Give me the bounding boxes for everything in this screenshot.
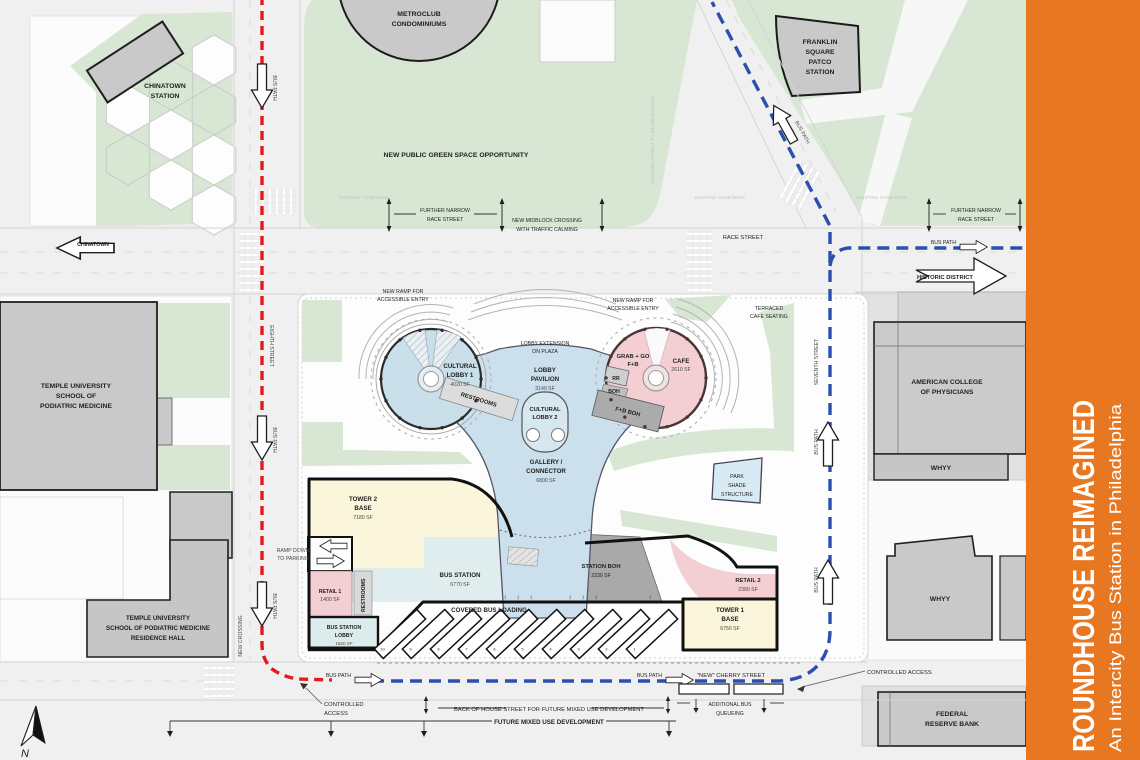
new-crossing-label: NEW CROSSING: [238, 615, 244, 656]
station-lobby-label: BUS STATION: [327, 625, 362, 631]
project-title: ROUNDHOUSE REIMAGINED: [1067, 400, 1101, 752]
column-dot: [604, 376, 607, 379]
column-dot: [643, 328, 646, 331]
cultural-lobby1-label: CULTURAL: [443, 363, 476, 370]
further-narrow-label: FURTHER NARROW: [420, 208, 470, 214]
seventh-street-label: SEVENTH STREET: [814, 338, 820, 385]
park-shade-label: PARK: [730, 474, 744, 480]
bus-queue-slot: [679, 684, 729, 694]
bus-path-label: BUS PATH: [271, 427, 277, 452]
column-dot: [704, 376, 707, 379]
site-plan-sheet: CHINATOWN STATION METROCLUB CONDOMINIUMS…: [0, 0, 1140, 760]
additional-queue-label: ADDITIONAL BUS: [708, 702, 752, 708]
station-lobby-label: LOBBY: [335, 633, 354, 639]
tick-arrow: ↕: [649, 595, 652, 601]
further-narrow-label: RACE STREET: [427, 217, 464, 223]
lobby-pavilion-label: PAVILION: [531, 376, 560, 383]
existing-curb-note: EXISTING CURB EDGE: [339, 195, 389, 200]
column-dot: [623, 415, 626, 418]
column-dot: [609, 398, 612, 401]
bus-path-label: BUS PATH: [326, 673, 351, 679]
green-area: [157, 303, 230, 398]
existing-curb-note: EXISTING CURB EDGE: [857, 195, 907, 200]
station-site: F+B BOH RESTROOMS RESTROOMS 10987654321 …: [277, 289, 868, 663]
cultural-lobby2-label: CULTURAL: [529, 407, 561, 413]
acp-label: OF PHYSICIANS: [921, 389, 974, 396]
patco-label: SQUARE: [805, 49, 835, 56]
terraced-seating-label: CAFE SEATING: [750, 314, 788, 320]
cultural-lobby2-label: LOBBY 2: [532, 415, 557, 421]
temple-residence-label: SCHOOL OF PODIATRIC MEDICINE: [106, 625, 210, 632]
historic-district-label: HISTORIC DISTRICT: [917, 275, 973, 281]
site-plan-map: CHINATOWN STATION METROCLUB CONDOMINIUMS…: [0, 0, 1140, 760]
column-dot: [474, 356, 477, 359]
temple-residence-label: RESIDENCE HALL: [131, 635, 186, 642]
tower2-label: 7180 SF: [353, 515, 373, 521]
metroclub-label: METROCLUB: [397, 11, 441, 18]
column-dot: [461, 338, 464, 341]
column-dot: [479, 377, 482, 380]
temple-residence-label: TEMPLE UNIVERSITY: [126, 615, 191, 622]
column-dot: [398, 338, 401, 341]
column-dot: [686, 415, 689, 418]
retail2-label: 2380 SF: [738, 587, 758, 593]
cherry-street-label: "NEW" CHERRY STREET: [697, 673, 765, 679]
lobby1-core: [424, 372, 439, 387]
bus-station-label: BUS STATION: [439, 572, 481, 579]
bus-station-label: 6770 SF: [450, 582, 470, 588]
tower2-label: BASE: [354, 505, 371, 512]
further-narrow-label-right: FURTHER NARROW: [951, 208, 1001, 214]
stair-hatch: [507, 547, 538, 567]
midblock-label: NEW MIDBLOCK CROSSING: [512, 218, 582, 224]
existing-curb-note: EXISTING CURB EDGE: [695, 195, 745, 200]
column-dot: [418, 329, 421, 332]
boh-label: BOH: [608, 389, 620, 395]
existing-street-note: EXISTING STREET TO BE ABANDONED: [650, 96, 655, 182]
lobby-pavilion-label: LOBBY: [534, 367, 557, 374]
restrooms2-label: RESTROOMS: [361, 578, 367, 612]
column-dot: [461, 416, 464, 419]
acp-building: [874, 322, 1026, 454]
chinatown-direction-label: CHINATOWN: [77, 242, 109, 248]
controlled-access-label-left: CONTROLLED: [324, 702, 364, 708]
bus-path-label: BUS PATH: [814, 567, 820, 592]
race-street-label: RACE STREET: [723, 235, 764, 241]
column-dot: [665, 328, 668, 331]
green-area: [302, 300, 342, 362]
column-dot: [623, 337, 626, 340]
station-boh-label: 2330 SF: [591, 573, 611, 579]
green-space-block: METROCLUB CONDOMINIUMS NEW PUBLIC GREEN …: [304, 0, 697, 228]
retail2-label: RETAIL 2: [735, 578, 760, 584]
federal-reserve-label: RESERVE BANK: [925, 721, 979, 728]
column-dot: [474, 399, 477, 402]
chinatown-block: CHINATOWN STATION: [30, 12, 236, 235]
lobby2-fixture: [552, 429, 565, 442]
new-ramp-label-left: NEW RAMP FOR: [383, 289, 424, 295]
column-dot: [379, 377, 382, 380]
column-dot: [384, 399, 387, 402]
retail1-label: 1400 SF: [320, 597, 340, 603]
column-dot: [384, 356, 387, 359]
crosswalk: [686, 230, 712, 292]
building-footprint: [898, 292, 1026, 322]
crosswalk: [250, 188, 296, 214]
column-dot: [699, 398, 702, 401]
building-footprint: [0, 497, 123, 599]
additional-queue-label: QUEUEING: [716, 711, 744, 717]
patco-station-building: [776, 16, 860, 96]
tower1-label: TOWER 1: [716, 607, 745, 614]
temple-blocks: TEMPLE UNIVERSITY SCHOOL OF PODIATRIC ME…: [0, 296, 232, 662]
new-ramp-label-left: ACCESSIBLE ENTRY: [377, 297, 429, 303]
bus-bay-number: 10: [380, 646, 385, 651]
column-dot: [643, 425, 646, 428]
temple-sopm-label: SCHOOL OF: [56, 393, 96, 400]
building-footprint: [1000, 556, 1026, 640]
tick-arrow: ↕: [517, 595, 520, 601]
temple-sopm-label: TEMPLE UNIVERSITY: [41, 383, 112, 390]
cultural-lobby1-label: LOBBY 1: [447, 372, 474, 379]
gallery-label: 6800 SF: [536, 478, 556, 484]
bus-path-label: BUS PATH: [931, 240, 956, 246]
boh-street-label: BACK OF HOUSE STREET FOR FUTURE MIXED US…: [454, 707, 644, 713]
tick-arrow: ↕: [569, 595, 572, 601]
covered-loading-label: COVERED BUS LOADING: [451, 607, 527, 614]
patco-label: PATCO: [809, 59, 832, 66]
green-area: [157, 445, 230, 490]
ramp-down-label: TO PARKING: [277, 556, 309, 562]
whyy-lower-label: WHYY: [930, 596, 951, 603]
bus-path-label: BUS PATH: [814, 429, 820, 454]
tower1-label: 6750 SF: [720, 626, 740, 632]
bus-queue-slot: [734, 684, 783, 694]
column-dot: [398, 416, 401, 419]
tick-arrow: ↕: [582, 595, 585, 601]
cultural-lobby1-label: 4020 SF: [450, 382, 470, 388]
green-space-label: NEW PUBLIC GREEN SPACE OPPORTUNITY: [384, 152, 529, 159]
patco-label: STATION: [806, 69, 835, 76]
grab-go-label: F+B: [627, 362, 638, 368]
column-dot: [699, 355, 702, 358]
title-sidebar: ROUNDHOUSE REIMAGINED An Intercity Bus S…: [1026, 0, 1140, 760]
lobby-pavilion-label: 3140 SF: [535, 386, 555, 392]
controlled-access-label-left: ACCESS: [324, 711, 348, 717]
tick-arrow: ↕: [530, 595, 533, 601]
station-lobby-label: 1520 SF: [335, 641, 353, 646]
tower2-label: TOWER 2: [349, 496, 378, 503]
cafe-label: 2610 SF: [671, 367, 691, 373]
lobby2-fixture: [527, 429, 540, 442]
metroclub-label: CONDOMINIUMS: [392, 21, 447, 28]
building-footprint: [157, 398, 172, 445]
future-mixed-label: FUTURE MIXED USE DEVELOPMENT: [494, 719, 604, 726]
whyy-upper-label: WHYY: [931, 465, 952, 472]
eighth-street-label: EIGHTH STREET: [268, 325, 274, 367]
cultural-lobby2-room: [522, 392, 568, 452]
tick-arrow: ↕: [595, 595, 598, 601]
bus-path-label: BUS PATH: [271, 593, 277, 618]
chinatown-station-label: STATION: [151, 93, 180, 100]
park-shade-label: SHADE: [728, 483, 746, 489]
svg-text:RESTROOMS: RESTROOMS: [361, 578, 367, 612]
column-dot: [418, 426, 421, 429]
new-ramp-label-right: ACCESSIBLE ENTRY: [607, 306, 659, 312]
cafe-label: CAFE: [673, 358, 690, 365]
column-dot: [665, 425, 668, 428]
controlled-access-label-right: CONTROLLED ACCESS: [867, 670, 932, 676]
lobby-extension-label: ON PLAZA: [532, 349, 558, 355]
gallery-label: GALLERY /: [530, 459, 563, 466]
park-shade-label: STRUCTURE: [721, 492, 754, 498]
column-dot: [440, 426, 443, 429]
crosswalk: [204, 664, 234, 698]
ramp-down-label: RAMP DOWN: [277, 548, 310, 554]
bus-path-label: BUS PATH: [637, 673, 662, 679]
lobby-extension-label: LOBBY EXTENSION: [521, 341, 570, 347]
column-dot: [440, 329, 443, 332]
grab-go-label: GRAB + GO: [617, 354, 650, 360]
bus-path-label: BUS PATH: [271, 75, 277, 100]
chinatown-station-label: CHINATOWN: [144, 83, 186, 90]
tower1-label: BASE: [721, 616, 738, 623]
cafe-core: [649, 371, 664, 386]
new-ramp-label-right: NEW RAMP FOR: [613, 298, 654, 304]
retail1-label: RETAIL 1: [319, 589, 342, 595]
tick-arrow: ↕: [504, 595, 507, 601]
temple-sopm-label: PODIATRIC MEDICINE: [40, 403, 112, 410]
station-boh-label: STATION BOH: [581, 564, 620, 570]
column-dot: [609, 355, 612, 358]
building-footprint: [540, 0, 615, 62]
project-subtitle: An Intercity Bus Station in Philadelphia: [1107, 403, 1125, 752]
patco-label: FRANKLIN: [803, 39, 838, 46]
terraced-seating-label: TERRACED: [755, 306, 784, 312]
rr-label: RR: [612, 376, 620, 382]
midblock-label: WITH TRAFFIC CALMING: [516, 227, 578, 233]
federal-reserve-label: FEDERAL: [936, 711, 968, 718]
further-narrow-label-right: RACE STREET: [958, 217, 995, 223]
north-label: N: [21, 748, 29, 760]
column-dot: [686, 337, 689, 340]
gallery-label: CONNECTOR: [526, 468, 566, 475]
acp-label: AMERICAN COLLEGE: [911, 379, 983, 386]
